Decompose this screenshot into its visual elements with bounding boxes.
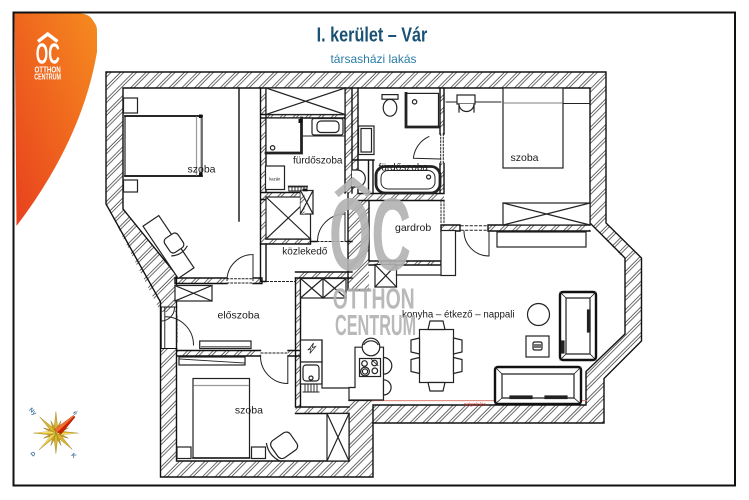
svg-text:OC: OC [329, 178, 411, 293]
svg-text:CENTRUM: CENTRUM [34, 74, 61, 82]
svg-text:szoba: szoba [511, 152, 539, 164]
svg-text:konyha – étkező – nappali: konyha – étkező – nappali [402, 310, 515, 321]
svg-text:fürdőszoba: fürdőszoba [293, 156, 343, 167]
svg-text:társasházi lakás: társasházi lakás [330, 52, 416, 66]
svg-text:Ny: Ny [27, 407, 37, 417]
svg-text:D: D [30, 450, 38, 458]
svg-text:CENTRUM: CENTRUM [335, 309, 416, 341]
svg-text:K: K [69, 453, 77, 461]
svg-text:I. kerület – Vár: I. kerület – Vár [317, 22, 428, 45]
svg-text:fürdőszoba: fürdőszoba [379, 163, 429, 174]
svg-text:közlekedő: közlekedő [282, 247, 327, 258]
svg-text:szoba: szoba [235, 405, 263, 417]
svg-text:szigetelés: szigetelés [464, 402, 487, 408]
svg-text:szoba: szoba [188, 164, 216, 176]
svg-text:kazán: kazán [269, 176, 281, 181]
svg-text:előszoba: előszoba [218, 310, 260, 322]
